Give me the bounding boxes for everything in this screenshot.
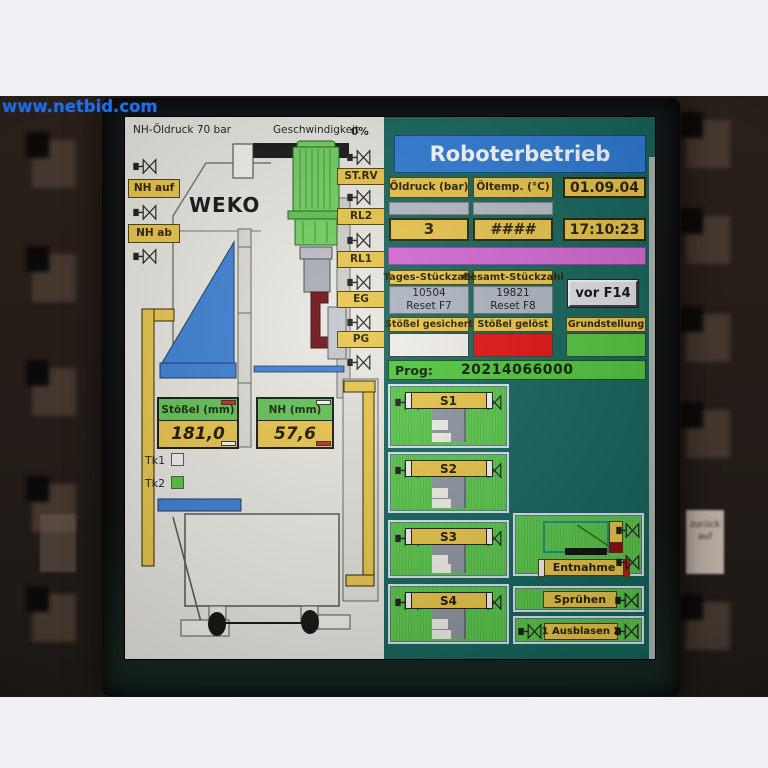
valve-icon	[347, 148, 371, 166]
valve-icon	[347, 273, 371, 291]
speed-value: 0%	[351, 126, 369, 138]
status-gesichert-indicator	[389, 333, 469, 357]
dark-background: zurück auf	[0, 96, 768, 697]
station-label: S4	[405, 592, 493, 609]
status-geloest-label: Stößel gelöst	[473, 317, 553, 332]
oil-pressure-value: 3	[389, 218, 469, 241]
entnahme-label: Entnahme	[543, 559, 625, 576]
station-row-s4: S4	[388, 584, 509, 644]
photo-white-band-top	[0, 0, 768, 96]
valve-tag-rl2: RL2	[337, 208, 385, 225]
status-grundstellung-indicator	[566, 333, 646, 357]
oil-pressure-scale	[389, 202, 469, 215]
gauge-stoessel: Stößel (mm) 181,0	[157, 397, 239, 449]
photo-white-band-bottom	[0, 697, 768, 768]
tool-graphic: S1	[390, 392, 507, 442]
tool-graphic: S3	[390, 528, 507, 573]
vor-f14-button[interactable]: vor F14	[568, 280, 638, 307]
control-panel: Roboterbetrieb Öldruck (bar) Öltemp. (°C…	[384, 117, 655, 659]
status-gesichert-label: Stößel gesichert	[389, 317, 469, 332]
entnahme-panel: Entnahme	[513, 513, 644, 576]
day-counter-reset: Reset F7	[406, 300, 451, 313]
program-number: 20214066000	[461, 362, 574, 378]
valve-tag-eg: EG	[337, 291, 385, 308]
pressure-note: NH-Öldruck 70 bar	[133, 124, 231, 136]
date-display: 01.09.04	[563, 177, 646, 198]
total-counter-value: 19821	[496, 287, 529, 300]
key-sticker: zurück auf	[686, 510, 724, 574]
valve-icon	[133, 157, 157, 175]
valve-tag-nh-ab: NH ab	[128, 224, 180, 243]
valve-tag-pg: PG	[337, 331, 385, 348]
valve-icon	[518, 622, 542, 640]
valve-icon	[347, 188, 371, 206]
spruehen-label: Sprühen	[543, 591, 617, 608]
mode-title: Roboterbetrieb	[394, 135, 646, 173]
tk1-checkbox[interactable]	[171, 453, 184, 466]
station-label: S3	[405, 528, 493, 545]
total-counter-label: Gesamt-Stückzahl	[473, 270, 553, 285]
valve-icon	[615, 622, 639, 640]
station-label: S1	[405, 392, 493, 409]
brand-label: WEKO	[189, 193, 253, 217]
ausblasen-label: 1 Ausblasen 2	[544, 623, 618, 640]
watermark: www.netbid.com	[2, 97, 158, 116]
mode-color-bar	[388, 247, 646, 265]
valve-tag-rl1: RL1	[337, 251, 385, 268]
oil-temp-value: ####	[473, 218, 553, 241]
tool-graphic: S4	[390, 592, 507, 639]
valve-icon	[347, 313, 371, 331]
day-counter-label: Tages-Stückzahl	[389, 270, 469, 285]
station-label: S2	[405, 460, 493, 477]
gauge-nh: NH (mm) 57,6	[256, 397, 334, 449]
valve-icon	[347, 353, 371, 371]
day-counter-box[interactable]: 10504 Reset F7	[389, 286, 469, 314]
total-counter-reset: Reset F8	[490, 300, 535, 313]
time-display: 17:10:23	[563, 218, 646, 241]
valve-icon	[616, 553, 640, 571]
valve-icon	[133, 247, 157, 265]
valve-icon	[133, 203, 157, 221]
valve-tag-nh-auf: NH auf	[128, 179, 180, 198]
speed-label: Geschwindigkeit	[273, 124, 359, 136]
stop-bar-red	[609, 543, 623, 553]
day-counter-value: 10504	[412, 287, 445, 300]
spruehen-panel: Sprühen	[513, 586, 644, 612]
valve-icon	[347, 231, 371, 249]
status-geloest-indicator	[473, 333, 553, 357]
station-row-s2: S2	[388, 452, 509, 513]
photo-of-hmi: zurück auf	[0, 0, 768, 768]
valve-icon	[615, 591, 639, 609]
monitor-bezel: NH-Öldruck 70 bar Geschwindigkeit 0% WEK…	[102, 98, 680, 696]
gripper-bar-graphic	[565, 548, 607, 555]
station-row-s1: S1	[388, 384, 509, 448]
tk2-checkbox[interactable]	[171, 476, 184, 489]
status-grundstellung-label: Grundstellung	[566, 317, 646, 332]
tool-tk2-label: Tk2	[145, 477, 165, 490]
valve-tag-strv: ST.RV	[337, 168, 385, 185]
ausblasen-panel: 1 Ausblasen 2	[513, 616, 644, 644]
program-bar: Prog: 20214066000	[388, 360, 646, 380]
screen-edge-strip	[649, 157, 655, 659]
oil-temp-label: Öltemp. (°C)	[473, 177, 553, 198]
oil-temp-scale	[473, 202, 553, 215]
station-row-s3: S3	[388, 520, 509, 578]
valve-icon	[616, 521, 640, 539]
machine-diagram: NH-Öldruck 70 bar Geschwindigkeit 0% WEK…	[125, 117, 385, 659]
key-sticker	[40, 514, 76, 572]
tool-tk1-label: Tk1	[145, 454, 165, 467]
total-counter-box[interactable]: 19821 Reset F8	[473, 286, 553, 314]
oil-pressure-label: Öldruck (bar)	[389, 177, 469, 198]
hmi-screen: NH-Öldruck 70 bar Geschwindigkeit 0% WEK…	[124, 116, 656, 660]
program-label: Prog:	[395, 363, 433, 378]
tool-graphic: S2	[390, 460, 507, 508]
